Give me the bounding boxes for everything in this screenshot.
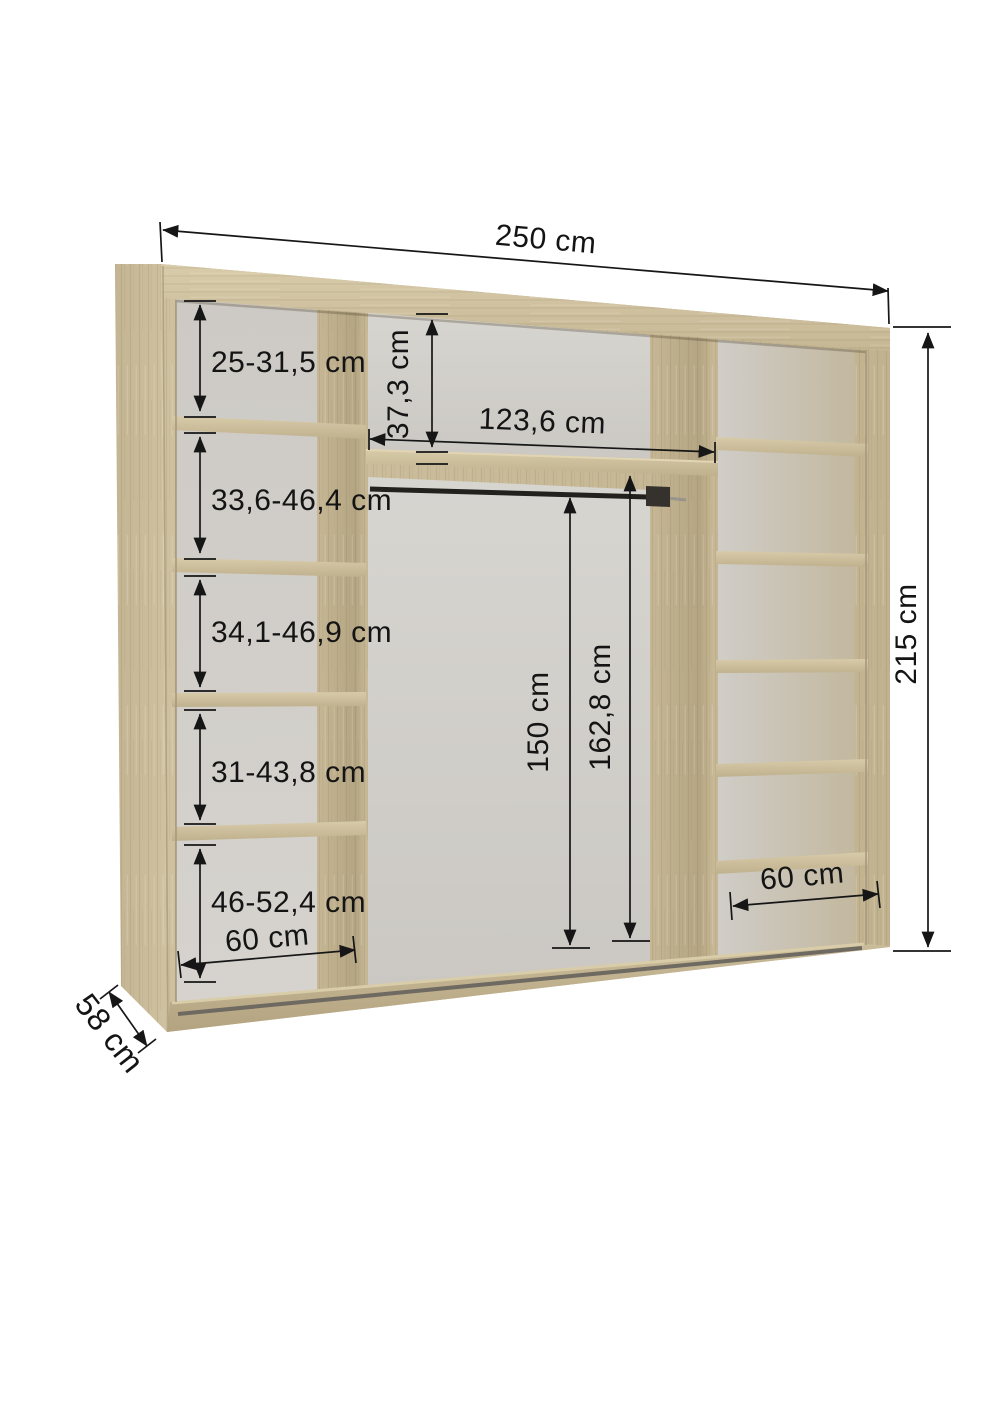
mid-width-label: 123,6 cm bbox=[478, 402, 607, 440]
clearance-height-label: 162,8 cm bbox=[584, 643, 617, 770]
left-shelf-3 bbox=[172, 692, 366, 707]
left-compartment-3-label: 34,1-46,9 cm bbox=[211, 616, 392, 649]
left-compartment-1-label: 25-31,5 cm bbox=[211, 346, 366, 379]
total-height-label: 215 cm bbox=[890, 583, 923, 684]
left-compartment-2-label: 33,6-46,4 cm bbox=[211, 484, 392, 517]
right-shelf-3 bbox=[716, 659, 868, 673]
total-width-label: 250 cm bbox=[494, 219, 598, 261]
dim-total-width-ext-left bbox=[160, 222, 162, 262]
left-side-panel-grain bbox=[115, 264, 167, 1032]
left-compartment-5-label: 46-52,4 cm bbox=[211, 886, 366, 919]
mid-top-gap-label: 37,3 cm bbox=[382, 329, 415, 439]
rail-height-label: 150 cm bbox=[522, 671, 555, 772]
dim-total-width-ext-right bbox=[888, 288, 889, 324]
partition-right-grain bbox=[650, 334, 716, 962]
diagram-canvas: 250 cm 25-31,5 cm 33,6-46,4 cm 34,1-46,9… bbox=[0, 0, 992, 1403]
clothes-rail-bracket bbox=[646, 486, 670, 507]
left-compartment-4-label: 31-43,8 cm bbox=[211, 756, 366, 789]
wardrobe-dimension-diagram: 250 cm 25-31,5 cm 33,6-46,4 cm 34,1-46,9… bbox=[0, 0, 992, 1403]
